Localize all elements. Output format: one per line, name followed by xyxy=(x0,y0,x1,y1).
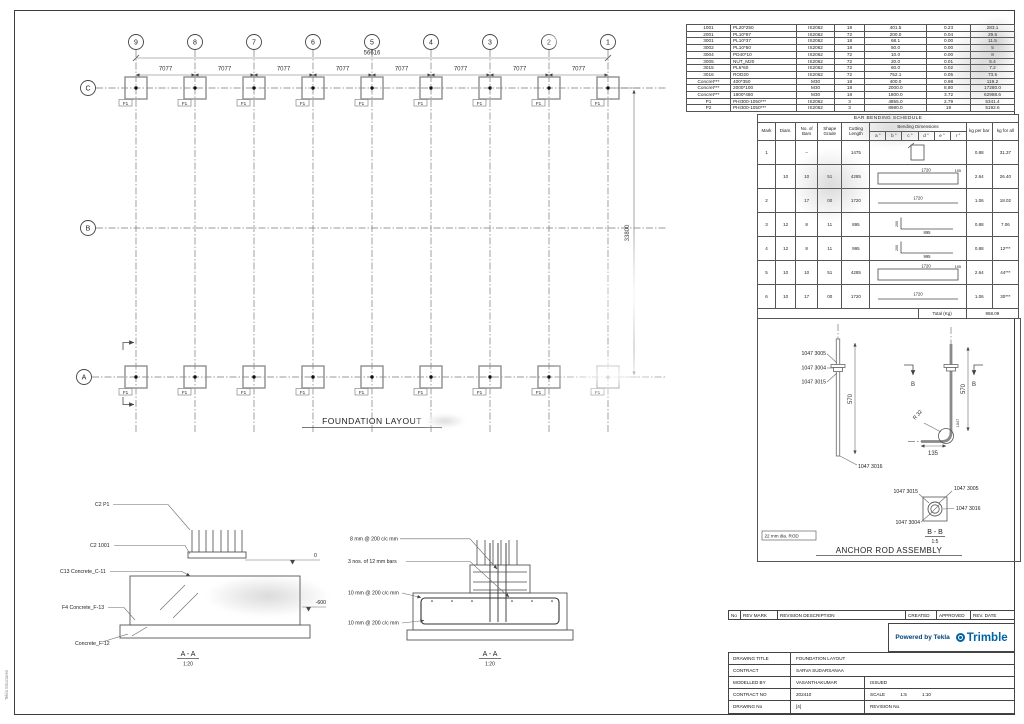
table-cell: 1001 xyxy=(687,25,731,32)
table-cell: 283.1 xyxy=(971,25,1015,32)
table-cell: 20.0 xyxy=(865,58,927,65)
table-cell: 8980.0 xyxy=(865,105,927,112)
table-cell: 2000*100 xyxy=(731,85,797,92)
total-width-dim: 56616 xyxy=(364,51,381,57)
svg-text:B: B xyxy=(911,382,915,388)
svg-text:1: 1 xyxy=(606,40,610,47)
table-cell: IS2062 xyxy=(797,98,835,105)
table-cell: 401.5 xyxy=(865,25,927,32)
table-cell: 72 xyxy=(835,31,865,38)
table-row: Concret***2000*100M30182000.08.8017280.0 xyxy=(687,85,1015,92)
footing-symbol xyxy=(178,77,206,106)
anchor-title: ANCHOR ROD ASSEMBLY xyxy=(836,546,943,555)
table-cell: 5.4 xyxy=(971,58,1015,65)
table-cell: 7.2 xyxy=(971,65,1015,72)
svg-text:1:20: 1:20 xyxy=(183,662,193,668)
table-cell: IS2062 xyxy=(797,25,835,32)
bar-shape-straight: 1720 xyxy=(871,286,965,307)
table-row: 1001PL20*250IS206218401.50.23283.1 xyxy=(687,25,1015,32)
footing-symbol xyxy=(473,366,501,395)
field-drawing-no: DRAWING No [4] REVISION No. xyxy=(729,701,1014,713)
svg-text:3 nos. of 12 mm bars: 3 nos. of 12 mm bars xyxy=(348,559,397,565)
table-cell: Concret*** xyxy=(687,85,731,92)
drawing-no-value: [4] xyxy=(791,701,865,713)
table-cell: 73.5 xyxy=(971,71,1015,78)
svg-text:0: 0 xyxy=(314,553,317,559)
svg-text:1047 3004: 1047 3004 xyxy=(895,520,920,526)
table-cell: 60.0 xyxy=(865,65,927,72)
table-cell: 5 xyxy=(971,45,1015,52)
revision-no-label: REVISION No. xyxy=(865,701,1014,713)
svg-text:1047 3005: 1047 3005 xyxy=(954,486,979,492)
svg-text:A: A xyxy=(82,375,87,382)
bbs-col-no: No. of Bars xyxy=(796,123,818,141)
svg-text:1720: 1720 xyxy=(913,195,923,200)
table-cell: 752.1 xyxy=(865,71,927,78)
table-cell: IS2062 xyxy=(797,31,835,38)
svg-text:7077: 7077 xyxy=(277,67,291,73)
table-row: 3001PL10*37IS20621868.10.0011.5 xyxy=(687,38,1015,45)
table-cell: 18 xyxy=(835,25,865,32)
svg-text:195: 195 xyxy=(955,265,961,269)
footing-symbol xyxy=(591,77,619,106)
bar-shape-closed-rect: 1720 195 xyxy=(871,262,965,283)
section-a-a-left: C2 P1 C2 1001 C13 Concrete_C-11 F4 Concr… xyxy=(60,502,326,668)
table-row: 3004PD40*10IS20627210.00.008 xyxy=(687,51,1015,58)
svg-text:C: C xyxy=(85,86,90,93)
table-cell: PL10*37 xyxy=(731,38,797,45)
section-b-markers: B B xyxy=(904,365,983,388)
side-margin-text: Tekla Structures xyxy=(4,670,9,700)
footing-symbol xyxy=(355,366,383,395)
bbs-total-label: Total (Kg) xyxy=(918,309,966,319)
svg-text:10 mm @ 200 c/c mm: 10 mm @ 200 c/c mm xyxy=(348,621,399,627)
table-cell: 0.98 xyxy=(927,78,971,85)
bbs-row: 1– 1475 0.8831.37 xyxy=(758,141,1019,165)
footing-symbol xyxy=(119,77,147,106)
table-cell: NUT_M20 xyxy=(731,58,797,65)
footing-symbol xyxy=(355,77,383,106)
table-row: 3002PL10*50IS20621850.00.005 xyxy=(687,45,1015,52)
table-cell: 11.5 xyxy=(971,38,1015,45)
bbs-col-bend: Bending Dimensions xyxy=(870,123,966,132)
table-row: Concret***400*350M3018400.00.98119.2 xyxy=(687,78,1015,85)
bbs-col-kgbar: kg per bar xyxy=(966,123,992,141)
footing-symbol xyxy=(532,366,560,395)
title-block-fields: DRAWING TITLE FOUNDATION LAYOUT CONTRACT… xyxy=(728,652,1015,714)
anchor-note: 22 mm dia. ROD xyxy=(765,534,800,539)
table-cell: Concret*** xyxy=(687,78,731,85)
table-cell: IS2062 xyxy=(797,58,835,65)
section-a-a-right: 8 mm @ 200 c/c mm 3 nos. of 12 mm bars 1… xyxy=(348,537,573,668)
table-cell: IS2062 xyxy=(797,71,835,78)
table-row: 2001PL10*97IS206272200.00.0429.6 xyxy=(687,31,1015,38)
footing-symbol xyxy=(237,77,265,106)
contract-value: SARVA SUDARSANAA xyxy=(791,665,1014,676)
table-cell: 62988.6 xyxy=(971,92,1015,99)
svg-text:135: 135 xyxy=(928,451,939,457)
table-cell: IS2062 xyxy=(797,45,835,52)
table-cell: 400*350 xyxy=(731,78,797,85)
detail-b-b: 1047 3015 1047 3005 1047 3016 1047 3004 … xyxy=(893,486,980,545)
svg-text:7077: 7077 xyxy=(513,67,527,73)
bbs-col-grade: Shape Grade xyxy=(818,123,842,141)
table-cell: 18 xyxy=(835,45,865,52)
tekla-trimble-logo: Powered by Tekla Trimble xyxy=(888,623,1015,652)
table-cell: PL10*50 xyxy=(731,45,797,52)
svg-text:C2 P1: C2 P1 xyxy=(95,502,110,508)
table-cell: 1800.0 xyxy=(865,92,927,99)
table-cell: Concret*** xyxy=(687,92,731,99)
svg-text:1047 3005: 1047 3005 xyxy=(801,351,826,357)
overall-height-dimension: 33800 xyxy=(614,88,640,377)
total-height-dim: 33800 xyxy=(625,224,631,241)
footing-symbol xyxy=(591,366,619,395)
svg-text:7077: 7077 xyxy=(395,67,409,73)
svg-text:8 mm @ 200 c/c mm: 8 mm @ 200 c/c mm xyxy=(350,537,398,543)
bbs-col-diam: Diam. xyxy=(776,123,796,141)
bbs-col-cut: Cutting Length xyxy=(842,123,870,141)
table-cell: 0.00 xyxy=(927,51,971,58)
table-cell: 2001 xyxy=(687,31,731,38)
svg-text:195: 195 xyxy=(955,169,961,173)
svg-text:B: B xyxy=(972,382,976,388)
bbs-total-row: Total (Kg) 958.09 xyxy=(758,309,1019,319)
svg-text:10 mm @ 200 c/c mm: 10 mm @ 200 c/c mm xyxy=(348,591,399,597)
svg-text:1047 3016: 1047 3016 xyxy=(956,506,981,512)
footing-symbol xyxy=(473,77,501,106)
svg-text:1720: 1720 xyxy=(921,167,931,172)
table-cell: 17280.0 xyxy=(971,85,1015,92)
svg-text:570: 570 xyxy=(848,393,854,404)
anchor-rod-assembly-panel: 1047 3005 1047 3004 1047 3015 570 1047 3… xyxy=(757,318,1021,562)
foundation-plan: F1 56616 7077 7077 xyxy=(0,0,680,470)
svg-text:9: 9 xyxy=(134,40,138,47)
table-row: P1PHI300-1050***IS206234855.02.795341.4 xyxy=(687,98,1015,105)
svg-text:7077: 7077 xyxy=(572,67,586,73)
table-cell: 3004 xyxy=(687,51,731,58)
svg-text:4: 4 xyxy=(429,40,433,47)
table-cell: IS2062 xyxy=(797,51,835,58)
svg-text:1720: 1720 xyxy=(921,263,931,268)
field-modelled-by: MODELLED BY VASANTHAKUMAR ISSUED xyxy=(729,677,1014,689)
svg-text:1:20: 1:20 xyxy=(485,662,495,668)
svg-text:F4 Concrete_F-13: F4 Concrete_F-13 xyxy=(62,605,104,611)
table-cell: 68.1 xyxy=(865,38,927,45)
table-cell: 72 xyxy=(835,65,865,72)
table-cell: 2.79 xyxy=(927,98,971,105)
footing-symbol xyxy=(237,366,265,395)
svg-text:895: 895 xyxy=(924,230,932,235)
table-cell: 400.0 xyxy=(865,78,927,85)
bbs-title: BAR BENDING SCHEDULE xyxy=(758,115,1019,123)
bbs-row: 51010 514285 1720 195 2.6444*** xyxy=(758,261,1019,285)
table-cell: 3 xyxy=(835,105,865,112)
table-cell: 29.6 xyxy=(971,31,1015,38)
table-cell: 1800*480 xyxy=(731,92,797,99)
svg-text:3: 3 xyxy=(488,40,492,47)
svg-text:200: 200 xyxy=(895,245,899,251)
drawing-title-value: FOUNDATION LAYOUT xyxy=(791,653,1014,664)
table-cell: M30 xyxy=(797,85,835,92)
table-cell: 0.02 xyxy=(927,65,971,72)
table-cell: ROD20 xyxy=(731,71,797,78)
table-cell: 8.80 xyxy=(927,85,971,92)
issued-value: ISSUED xyxy=(865,677,1014,688)
table-cell: 5341.4 xyxy=(971,98,1015,105)
bar-shape-l-bend: 995 200 xyxy=(871,238,965,259)
bbs-row: 217 001720 1720 1.0618.02 xyxy=(758,189,1019,213)
table-cell: 18 xyxy=(835,85,865,92)
table-row: 3015PL6*60IS20627260.00.027.2 xyxy=(687,65,1015,72)
svg-text:C13 Concrete_C-11: C13 Concrete_C-11 xyxy=(60,569,106,575)
bbs-total-value: 958.09 xyxy=(966,309,1018,319)
footing-symbol xyxy=(414,77,442,106)
field-contract-no: CONTRACT NO 202410 SCALE 1:5 1:10 xyxy=(729,689,1014,701)
footing-symbol xyxy=(414,366,442,395)
svg-text:C2 1001: C2 1001 xyxy=(90,543,110,549)
bar-bending-schedule: BAR BENDING SCHEDULE Mark Diam. No. of B… xyxy=(757,114,1019,319)
table-cell: 4855.0 xyxy=(865,98,927,105)
table-cell: P2 xyxy=(687,105,731,112)
modelled-by-value: VASANTHAKUMAR xyxy=(791,677,865,688)
table-row: P2PHI300-1050***IS206238980.0195192.6 xyxy=(687,105,1015,112)
field-drawing-title: DRAWING TITLE FOUNDATION LAYOUT xyxy=(729,653,1014,665)
table-cell: 2000.0 xyxy=(865,85,927,92)
parts-table: 1001PL20*250IS206218401.50.23283.12001PL… xyxy=(686,24,1015,112)
footing-symbol xyxy=(119,366,147,395)
svg-text:R 32: R 32 xyxy=(912,409,924,421)
table-cell: 3015 xyxy=(687,65,731,72)
svg-text:8: 8 xyxy=(193,40,197,47)
bar-shape-closed-rect: 1720 195 xyxy=(871,166,965,187)
svg-text:1047 3004: 1047 3004 xyxy=(801,366,826,372)
svg-text:-600: -600 xyxy=(316,600,326,606)
svg-text:1047 3015: 1047 3015 xyxy=(801,380,826,386)
svg-text:Concrete_F-12: Concrete_F-12 xyxy=(75,641,110,647)
table-cell: 19 xyxy=(927,105,971,112)
table-cell: 3002 xyxy=(687,45,731,52)
svg-text:570: 570 xyxy=(961,383,967,394)
table-cell: 18 xyxy=(835,38,865,45)
svg-text:1047 3015: 1047 3015 xyxy=(893,489,918,495)
bar-shape-small-rect xyxy=(871,142,965,163)
table-cell: M30 xyxy=(797,78,835,85)
svg-text:5: 5 xyxy=(370,40,374,47)
svg-text:1720: 1720 xyxy=(913,291,923,296)
svg-text:200: 200 xyxy=(895,221,899,227)
table-cell: 50.0 xyxy=(865,45,927,52)
svg-text:7077: 7077 xyxy=(159,67,173,73)
bar-shape-straight: 1720 xyxy=(871,190,965,211)
table-cell: 18 xyxy=(835,78,865,85)
bbs-row: 61017 001720 1720 1.0630*** xyxy=(758,285,1019,309)
table-cell: IS2062 xyxy=(797,38,835,45)
svg-text:7077: 7077 xyxy=(336,67,350,73)
table-cell: PD40*10 xyxy=(731,51,797,58)
table-cell: 200.0 xyxy=(865,31,927,38)
table-cell: 3001 xyxy=(687,38,731,45)
powered-by-tekla-text: Powered by Tekla xyxy=(895,634,949,641)
footing-symbol xyxy=(296,366,324,395)
table-row: 3016ROD20IS206272752.10.0573.5 xyxy=(687,71,1015,78)
table-cell: 3.72 xyxy=(927,92,971,99)
table-cell: 0.00 xyxy=(927,45,971,52)
svg-text:7077: 7077 xyxy=(218,67,232,73)
table-cell: PL6*60 xyxy=(731,65,797,72)
table-cell: 0.23 xyxy=(927,25,971,32)
bbs-col-mark: Mark xyxy=(758,123,776,141)
table-cell: 5192.6 xyxy=(971,105,1015,112)
svg-text:995: 995 xyxy=(924,254,932,259)
svg-text:A - A: A - A xyxy=(181,651,196,658)
table-cell: P1 xyxy=(687,98,731,105)
table-cell: IS2062 xyxy=(797,105,835,112)
table-cell: PL10*97 xyxy=(731,31,797,38)
trimble-wordmark: Trimble xyxy=(956,632,1008,644)
footing-symbol xyxy=(532,77,560,106)
svg-text:B: B xyxy=(86,226,91,233)
bbs-row: 4128 11995 995 200 0.8812*** xyxy=(758,237,1019,261)
table-cell: 8 xyxy=(971,51,1015,58)
table-cell: 0.05 xyxy=(927,71,971,78)
svg-text:1:5: 1:5 xyxy=(932,539,939,545)
plan-title: FOUNDATION LAYOUT xyxy=(322,416,422,426)
table-cell: PL20*250 xyxy=(731,25,797,32)
svg-text:6: 6 xyxy=(311,40,315,47)
footing-symbol xyxy=(178,366,206,395)
svg-text:1047: 1047 xyxy=(956,419,960,427)
table-cell: M30 xyxy=(797,92,835,99)
section-details: C2 P1 C2 1001 C13 Concrete_C-11 F4 Concr… xyxy=(40,470,660,710)
svg-text:1047 3016: 1047 3016 xyxy=(858,464,883,470)
table-cell: 72 xyxy=(835,58,865,65)
svg-text:B - B: B - B xyxy=(927,529,943,536)
bbs-row: 3128 11895 895 200 0.887.06 xyxy=(758,213,1019,237)
trimble-logo-icon xyxy=(956,633,965,642)
table-cell: 18 xyxy=(835,92,865,99)
table-row: 3005NUT_M20IS20627220.00.015.4 xyxy=(687,58,1015,65)
grid-bubbles-rows: C B A xyxy=(77,81,96,385)
svg-text:7: 7 xyxy=(252,40,256,47)
table-cell: 72 xyxy=(835,71,865,78)
table-cell: 119.2 xyxy=(971,78,1015,85)
grid-bubbles-columns: 9 8 7 6 5 4 3 2 1 xyxy=(129,35,616,50)
svg-text:A - A: A - A xyxy=(483,651,498,658)
table-cell: PHI300-1050*** xyxy=(731,98,797,105)
table-cell: 0.04 xyxy=(927,31,971,38)
footing-symbol xyxy=(296,77,324,106)
scale-value: SCALE 1:5 1:10 xyxy=(865,689,1014,700)
table-cell: 10.0 xyxy=(865,51,927,58)
table-row: Concret***1800*480M30181800.03.7262988.6 xyxy=(687,92,1015,99)
field-contract: CONTRACT SARVA SUDARSANAA xyxy=(729,665,1014,677)
table-cell: 3 xyxy=(835,98,865,105)
svg-text:2: 2 xyxy=(547,40,551,47)
table-cell: 0.00 xyxy=(927,38,971,45)
bar-shape-l-bend: 895 200 xyxy=(871,214,965,235)
table-cell: 3016 xyxy=(687,71,731,78)
table-cell: PHI300-1050*** xyxy=(731,105,797,112)
revision-header-row: No REV MARK REVISION DESCRIPTION CREATED… xyxy=(728,610,1015,620)
bbs-row: 1010 514285 1720 195 2.6426.40 xyxy=(758,165,1019,189)
table-cell: 3005 xyxy=(687,58,731,65)
svg-text:7077: 7077 xyxy=(454,67,468,73)
anchor-rod-assembly-drawing: 1047 3005 1047 3004 1047 3015 570 1047 3… xyxy=(758,319,1020,561)
title-block: No REV MARK REVISION DESCRIPTION CREATED… xyxy=(728,610,1015,714)
table-cell: 72 xyxy=(835,51,865,58)
contract-no-value: 202410 xyxy=(791,689,865,700)
bbs-col-kgall: kg for all xyxy=(992,123,1018,141)
table-cell: 0.01 xyxy=(927,58,971,65)
table-cell: IS2062 xyxy=(797,65,835,72)
drawing-sheet: Tekla Structures F1 56616 xyxy=(0,0,1024,724)
